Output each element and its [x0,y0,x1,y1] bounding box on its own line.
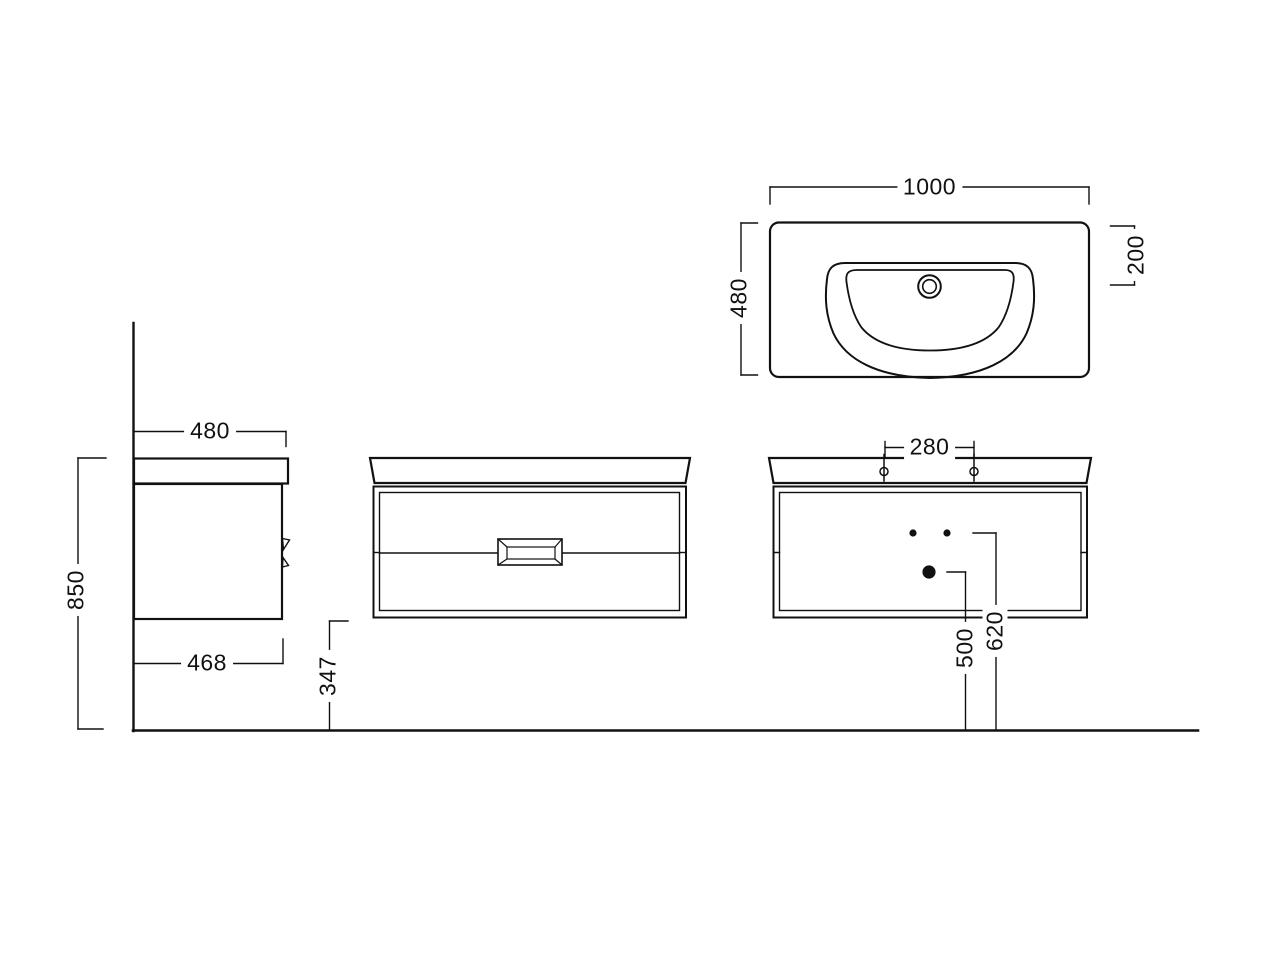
plan-depth-label: 480 [727,272,752,324]
plan-view [741,187,1135,378]
tap-spacing-label: 280 [904,435,956,460]
drain-dot [922,565,935,578]
drain-symbol [918,275,941,298]
side-cabinet-depth-label: 468 [181,651,233,676]
front-view [330,458,691,730]
side-view-cabinet [134,484,282,619]
side-view-worktop [134,459,288,484]
basin-inner-outline [846,270,1013,351]
technical-drawing-vanity-unit: 1000 480 200 480 850 468 347 280 500 620 [0,0,1280,960]
front-holes-cabinet [774,487,1088,618]
drawing-geometry [0,0,1280,960]
side-depth-label: 480 [184,419,236,444]
side-view [78,432,290,730]
plan-worktop-outline [770,223,1089,378]
front-view-worktop [370,458,690,483]
drain-height-label: 500 [953,622,978,674]
side-height-label: 850 [64,564,89,616]
tap-height-label: 620 [983,605,1008,657]
side-view-handle-profile [283,539,290,568]
plan-drain-offset-label: 200 [1124,229,1149,281]
plan-width-label: 1000 [897,175,962,200]
front-view-recessed-handle [498,539,562,565]
front-clearance-label: 347 [316,650,341,702]
front-holes-view [769,442,1091,731]
front-holes-worktop [769,458,1091,483]
